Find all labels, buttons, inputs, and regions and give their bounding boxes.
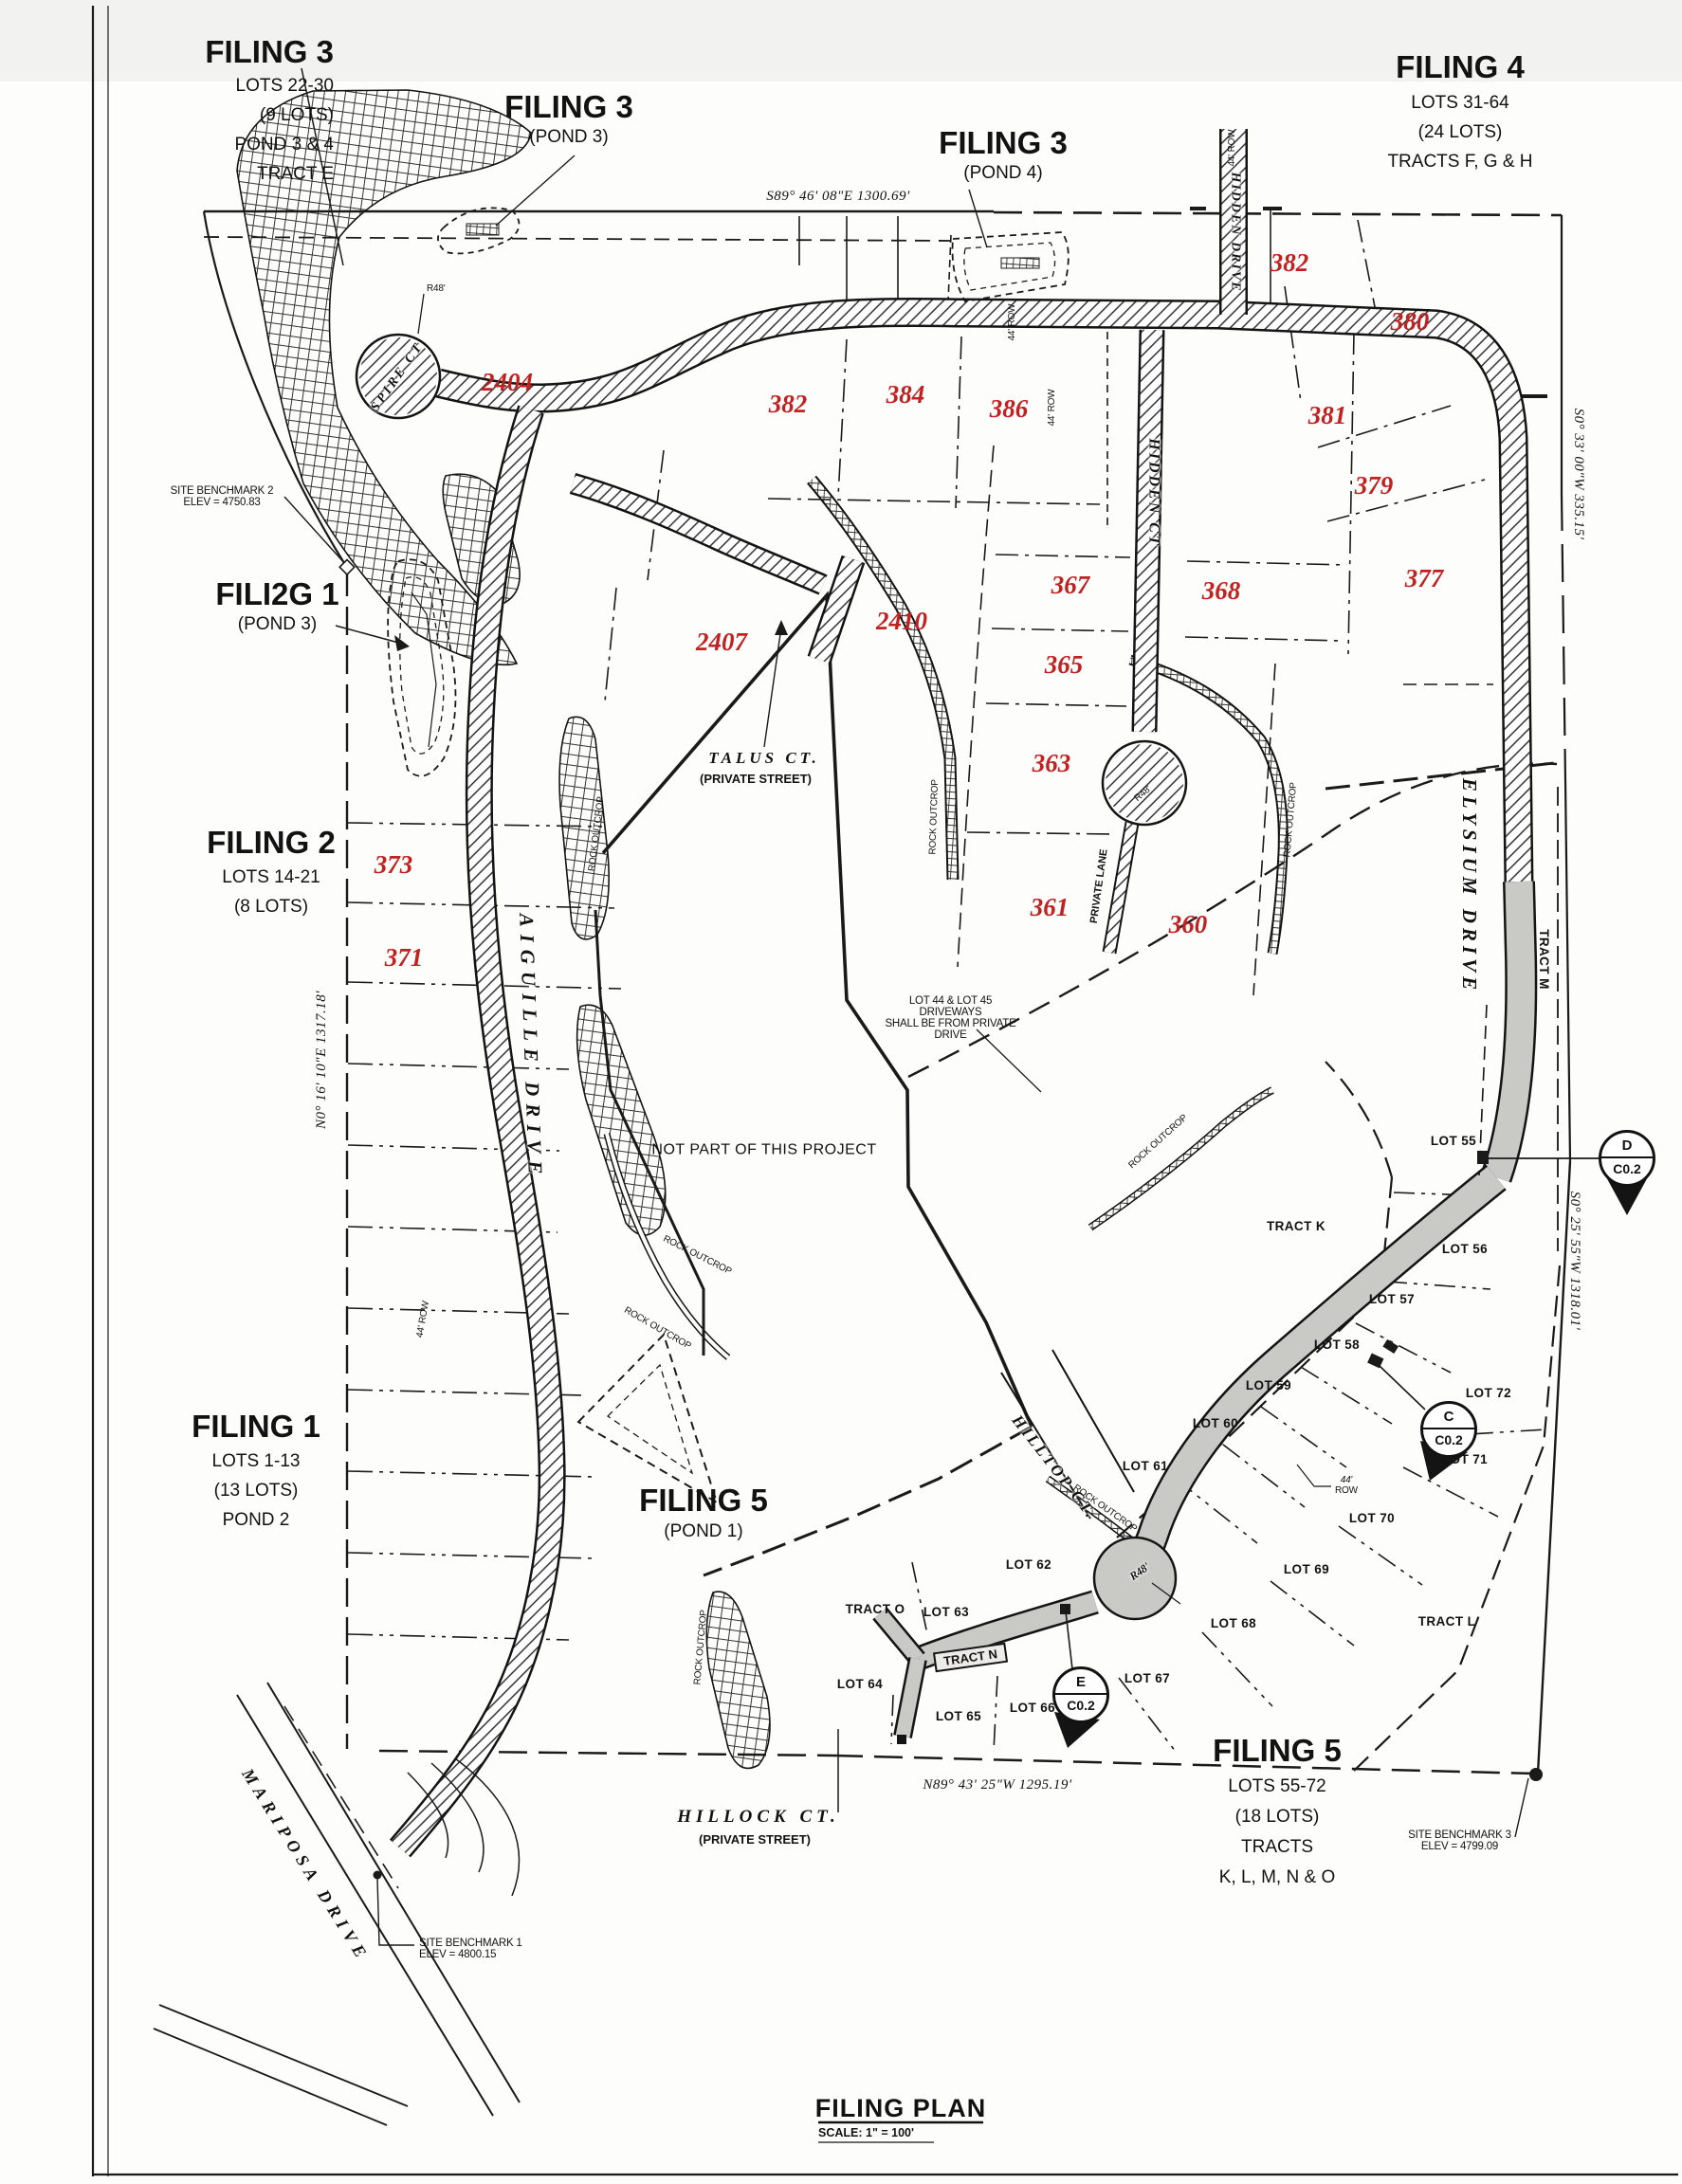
- lot-64: LOT 64: [837, 1678, 883, 1691]
- filing5-line3: TRACTS: [1164, 1837, 1390, 1858]
- parcel-379: 379: [1355, 472, 1394, 499]
- filing1-title: FILING 1: [161, 1409, 351, 1445]
- detail-marker-d-code: C0.2: [1601, 1158, 1653, 1180]
- bearing-east-lower: S0° 25' 55"W 1318.01': [1566, 1192, 1581, 1331]
- lot-63: LOT 63: [923, 1606, 969, 1619]
- parcel-361: 361: [1031, 894, 1070, 920]
- parcel-2407: 2407: [696, 628, 747, 655]
- filing5-pond1-block: FILING 5 (POND 1): [609, 1483, 798, 1542]
- detail-marker-d-letter: D: [1601, 1133, 1653, 1158]
- filing2-line1: LOTS 14-21: [178, 867, 364, 888]
- lot-58: LOT 58: [1314, 1338, 1360, 1352]
- filing3-nw-line3: POND 3 & 4: [133, 135, 334, 155]
- row-label-main-road: 44' ROW: [1008, 304, 1018, 341]
- tract-l: TRACT L: [1418, 1615, 1476, 1629]
- lot-57: LOT 57: [1369, 1293, 1415, 1306]
- lot-69: LOT 69: [1284, 1563, 1329, 1576]
- benchmark3-line2: ELEV = 4799.09: [1386, 1841, 1533, 1852]
- filing4-line1: LOTS 31-64: [1327, 93, 1593, 114]
- filing5-line1: LOTS 55-72: [1164, 1776, 1390, 1797]
- filing4-line3: TRACTS F, G & H: [1327, 152, 1593, 173]
- row-hilltop-44: 44': [1335, 1475, 1358, 1485]
- filing-plan-sheet: FILING 3 LOTS 22-30 (9 LOTS) POND 3 & 4 …: [0, 0, 1682, 2184]
- parcel-382b: 382: [1271, 249, 1309, 276]
- r48-spire: R48': [427, 284, 445, 295]
- lot-lines-filing5: [891, 1192, 1545, 1752]
- driveway-note-line2: SHALL BE FROM PRIVATE DRIVE: [882, 1018, 1019, 1041]
- bearing-east-upper: S0° 33' 00"W 335.15': [1570, 409, 1585, 540]
- lot-55: LOT 55: [1431, 1135, 1476, 1148]
- street-hillock-sub: (PRIVATE STREET): [699, 1833, 811, 1847]
- benchmark1-block: SITE BENCHMARK 1 ELEV = 4800.15: [419, 1938, 561, 1960]
- row-label-hidden-drive: 44' ROW: [1228, 130, 1238, 167]
- parcel-380: 380: [1391, 308, 1430, 335]
- filing5-block: FILING 5 LOTS 55-72 (18 LOTS) TRACTS K, …: [1164, 1733, 1390, 1888]
- lot-68: LOT 68: [1211, 1617, 1256, 1630]
- filing1-pond3-sub: (POND 3): [180, 614, 375, 635]
- lot-67: LOT 67: [1124, 1672, 1170, 1685]
- street-talus-ct: TALUS CT.: [708, 750, 820, 767]
- filing5-line4: K, L, M, N & O: [1164, 1867, 1390, 1888]
- scale-label: SCALE: 1" = 100': [818, 2127, 914, 2139]
- filing4-title: FILING 4: [1327, 49, 1593, 85]
- benchmark2-block: SITE BENCHMARK 2 ELEV = 4750.83: [155, 485, 288, 508]
- detail-marker-d: D C0.2: [1599, 1130, 1655, 1187]
- lot-60: LOT 60: [1193, 1417, 1238, 1430]
- filing1-line2: (13 LOTS): [161, 1481, 351, 1501]
- not-part-note: NOT PART OF THIS PROJECT: [651, 1143, 876, 1159]
- parcel-386: 386: [990, 395, 1029, 422]
- filing5-pond1-title: FILING 5: [609, 1483, 798, 1519]
- filing1-line1: LOTS 1-13: [161, 1451, 351, 1472]
- parcel-363: 363: [1033, 750, 1071, 776]
- street-hidden-ct: HIDDEN CT: [1145, 438, 1161, 547]
- filing5-title: FILING 5: [1164, 1733, 1390, 1769]
- filing1-block: FILING 1 LOTS 1-13 (13 LOTS) POND 2: [161, 1409, 351, 1531]
- filing1-pond3-block: FILI2G 1 (POND 3): [180, 576, 375, 635]
- detail-marker-e: E C0.2: [1052, 1666, 1109, 1723]
- filing3-pond3-title: FILING 3: [474, 89, 664, 125]
- filing3-pond3-block: FILING 3 (POND 3): [474, 89, 664, 148]
- filing3-nw-title: FILING 3: [133, 34, 334, 70]
- parcel-367: 367: [1051, 572, 1090, 598]
- lot-62: LOT 62: [1006, 1558, 1051, 1572]
- filing5-pond1-sub: (POND 1): [609, 1521, 798, 1542]
- parcel-371: 371: [385, 944, 424, 971]
- row-hilltop-row: ROW: [1335, 1485, 1358, 1496]
- parcel-382a: 382: [769, 391, 808, 417]
- lot-72: LOT 72: [1466, 1387, 1511, 1400]
- filing3-pond4-block: FILING 3 (POND 4): [908, 125, 1098, 184]
- detail-marker-e-code: C0.2: [1055, 1695, 1106, 1717]
- benchmark2-line2: ELEV = 4750.83: [155, 497, 288, 508]
- page-title: FILING PLAN: [815, 2095, 987, 2121]
- row-label-hilltop: 44' ROW: [1335, 1475, 1358, 1496]
- driveway-note-line1: LOT 44 & LOT 45 DRIVEWAYS: [882, 995, 1019, 1018]
- filing4-line2: (24 LOTS): [1327, 122, 1593, 143]
- street-elysium-drive: ELYSIUM DRIVE: [1459, 778, 1480, 994]
- filing1-pond3-title: FILI2G 1: [180, 576, 375, 612]
- tract-m: TRACT M: [1537, 929, 1550, 990]
- parcel-365: 365: [1045, 651, 1084, 678]
- plan-linework: [0, 0, 1682, 2184]
- filing5-line2: (18 LOTS): [1164, 1807, 1390, 1828]
- filing2-title: FILING 2: [178, 825, 364, 861]
- filing3-nw-line1: LOTS 22-30: [133, 76, 334, 97]
- detail-marker-c-letter: C: [1423, 1404, 1474, 1429]
- parcel-2410: 2410: [876, 608, 927, 634]
- filing3-nw-line2: (9 LOTS): [133, 105, 334, 126]
- tract-o: TRACT O: [846, 1603, 905, 1616]
- lot-66: LOT 66: [1010, 1702, 1055, 1715]
- benchmark1-line2: ELEV = 4800.15: [419, 1949, 561, 1960]
- filing1-line3: POND 2: [161, 1510, 351, 1531]
- filing3-pond3-sub: (POND 3): [474, 127, 664, 148]
- benchmark1-line1: SITE BENCHMARK 1: [419, 1938, 561, 1949]
- filing4-block: FILING 4 LOTS 31-64 (24 LOTS) TRACTS F, …: [1327, 49, 1593, 173]
- street-hidden-drive: HIDDEN DRIVE: [1228, 172, 1242, 292]
- lot-70: LOT 70: [1349, 1512, 1395, 1525]
- benchmark3-line1: SITE BENCHMARK 3: [1386, 1829, 1533, 1841]
- parcel-368: 368: [1202, 577, 1241, 604]
- parcel-377: 377: [1405, 565, 1444, 591]
- row-label-hidden-ct: 44' ROW: [1048, 390, 1058, 427]
- filing3-pond4-sub: (POND 4): [908, 163, 1098, 184]
- street-hillock-ct: HILLOCK CT.: [677, 1808, 840, 1827]
- detail-marker-c-code: C0.2: [1423, 1429, 1474, 1451]
- tract-k: TRACT K: [1267, 1220, 1325, 1233]
- lot-61: LOT 61: [1123, 1460, 1168, 1473]
- street-talus-sub: (PRIVATE STREET): [700, 773, 812, 786]
- detail-marker-e-letter: E: [1055, 1669, 1106, 1695]
- bearing-west: N0° 16' 10"E 1317.18': [315, 991, 330, 1129]
- filing3-nw-block: FILING 3 LOTS 22-30 (9 LOTS) POND 3 & 4 …: [133, 34, 334, 185]
- benchmark2-line1: SITE BENCHMARK 2: [155, 485, 288, 497]
- lot-59: LOT 59: [1246, 1379, 1291, 1392]
- benchmark3-block: SITE BENCHMARK 3 ELEV = 4799.09: [1386, 1829, 1533, 1852]
- driveway-note: LOT 44 & LOT 45 DRIVEWAYS SHALL BE FROM …: [882, 995, 1019, 1041]
- bearing-north: S89° 46' 08"E 1300.69': [766, 190, 909, 205]
- lot-65: LOT 65: [936, 1710, 981, 1723]
- parcel-2404: 2404: [482, 369, 533, 395]
- parcel-384: 384: [887, 381, 925, 408]
- parcel-373: 373: [375, 851, 413, 878]
- parcel-360: 360: [1169, 911, 1208, 937]
- filing3-nw-line4: TRACT E: [133, 164, 334, 185]
- filing2-line2: (8 LOTS): [178, 897, 364, 918]
- parcel-381: 381: [1308, 402, 1347, 428]
- bearing-south: N89° 43' 25"W 1295.19': [923, 1778, 1071, 1793]
- lot-56: LOT 56: [1442, 1243, 1488, 1256]
- detail-marker-c: C C0.2: [1420, 1401, 1477, 1458]
- filing2-block: FILING 2 LOTS 14-21 (8 LOTS): [178, 825, 364, 918]
- filing3-pond4-title: FILING 3: [908, 125, 1098, 161]
- gray-roads: [880, 787, 1558, 1744]
